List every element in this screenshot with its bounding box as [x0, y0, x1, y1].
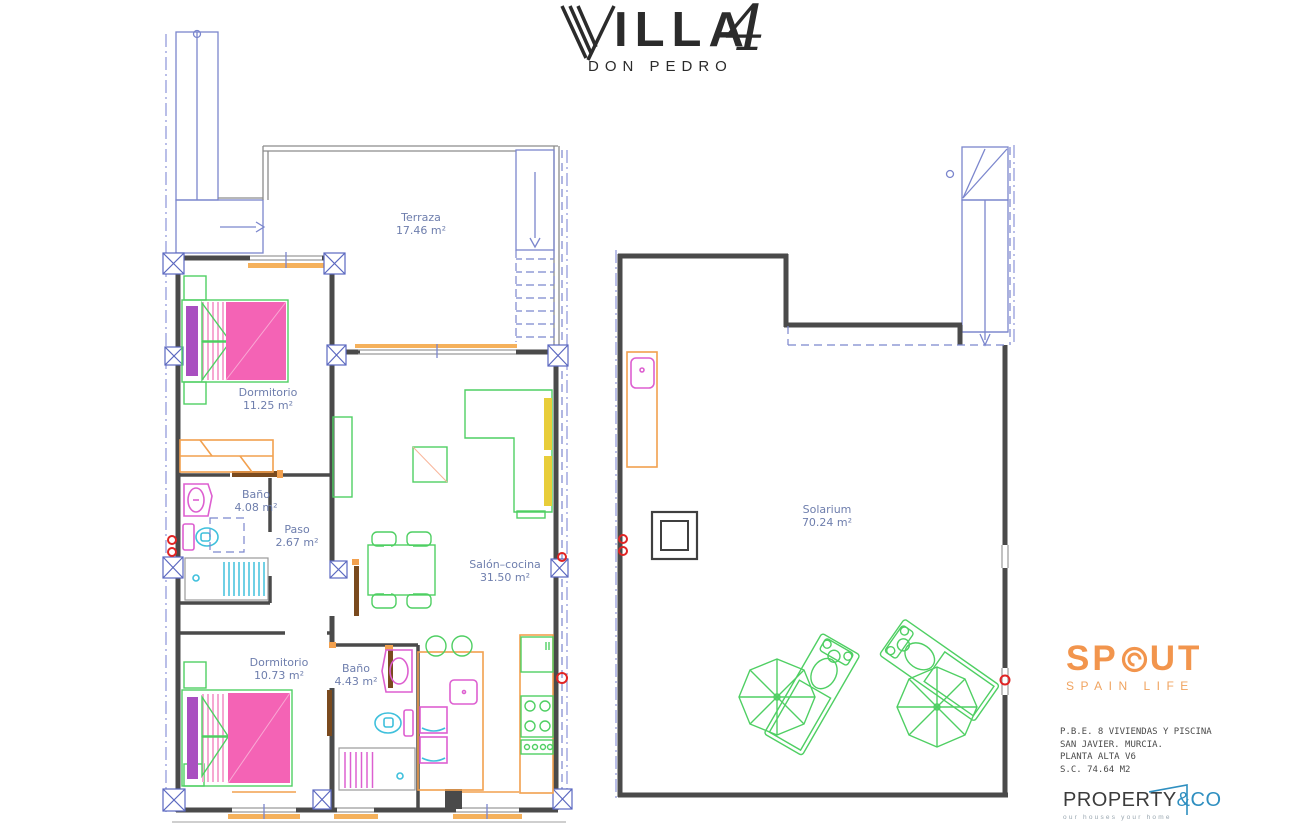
column: [165, 347, 183, 365]
room-label-terraza: Terraza: [400, 211, 441, 224]
roof-projection: [788, 326, 1005, 345]
floorplan-drawing: Terraza 17.46 m² Dormitorio 11.25 m² Bañ…: [0, 0, 1290, 840]
column: [553, 789, 572, 809]
shower: [339, 748, 415, 790]
plumbing-symbols: [619, 535, 1010, 685]
floorplan-sheet: Terraza 17.46 m² Dormitorio 11.25 m² Bañ…: [0, 0, 1290, 840]
project-line-3: PLANTA ALTA V6: [1060, 751, 1212, 764]
parasol: [739, 659, 815, 735]
project-line-2: SAN JAVIER. MURCIA.: [1060, 739, 1212, 752]
room-area-paso: 2.67 m²: [275, 536, 318, 549]
kitchen: [418, 635, 553, 793]
left-plan: Terraza 17.46 m² Dormitorio 11.25 m² Bañ…: [163, 31, 572, 823]
room-area-solarium: 70.24 m²: [802, 516, 852, 529]
room-label-dormitorio1: Dormitorio: [239, 386, 298, 399]
column: [330, 561, 347, 578]
column: [324, 253, 345, 274]
parasol: [897, 667, 977, 747]
spout-logo-pre: SP: [1066, 642, 1119, 676]
sink: [382, 650, 412, 692]
room-label-dormitorio2: Dormitorio: [250, 656, 309, 669]
villa-v-monogram: [558, 2, 620, 64]
room-label-solarium: Solarium: [803, 503, 852, 516]
spout-logo: SP UT SPAIN LIFE: [1066, 642, 1202, 693]
solarium-counter: [627, 352, 657, 467]
spout-tagline: SPAIN LIFE: [1066, 679, 1202, 693]
double-bed: [182, 690, 292, 786]
room-area-salon: 31.50 m²: [480, 571, 530, 584]
corner-sofa: [465, 390, 552, 518]
room-label-salon: Salón–cocina: [469, 558, 541, 571]
toilet: [375, 710, 413, 736]
project-line-4: S.C. 74.64 M2: [1060, 764, 1212, 777]
property-roof-icon: [1149, 783, 1195, 817]
column: [163, 557, 183, 578]
right-plan: Solarium 70.24 m²: [618, 147, 1010, 797]
column: [445, 789, 462, 809]
shower: [185, 558, 268, 600]
toilet: [183, 524, 218, 550]
washer: [420, 707, 447, 733]
column: [163, 789, 185, 811]
project-line-1: P.B.E. 8 VIVIENDAS Y PISCINA: [1060, 726, 1212, 739]
solarium-staircase: [947, 147, 1009, 345]
column: [551, 559, 568, 577]
title-number: 4: [726, 0, 766, 65]
fridge: [521, 637, 553, 672]
skylight: [652, 512, 697, 559]
room-area-dormitorio1: 11.25 m²: [243, 399, 293, 412]
spout-logo-post: UT: [1150, 642, 1203, 676]
coffee-table: [413, 447, 447, 482]
double-bed: [182, 300, 288, 382]
terraza-staircase: [516, 150, 554, 342]
tv-unit: [333, 417, 352, 497]
property-tagline: our houses your home: [1063, 814, 1222, 821]
sink: [184, 484, 212, 516]
project-info-block: P.B.E. 8 VIVIENDAS Y PISCINASAN JAVIER. …: [1060, 726, 1212, 776]
stove: [521, 696, 553, 754]
column: [548, 345, 568, 366]
room-labels: Terraza 17.46 m² Dormitorio 11.25 m² Bañ…: [234, 211, 540, 688]
room-area-bano1: 4.08 m²: [234, 501, 277, 514]
spout-spiral-icon: [1121, 646, 1148, 673]
room-label-bano1: Baño: [242, 488, 270, 501]
column: [313, 790, 331, 809]
sheet-title: ILLA 4 DON PEDRO: [556, 0, 806, 86]
room-area-terraza: 17.46 m²: [396, 224, 446, 237]
washer: [420, 737, 447, 763]
wardrobe: [180, 440, 273, 472]
exterior-staircase: [176, 31, 264, 254]
room-area-bano2: 4.43 m²: [334, 675, 377, 688]
title-subtitle: DON PEDRO: [588, 58, 733, 75]
column: [327, 345, 346, 365]
property-logo: PROPERTY&CO our houses your home: [1063, 789, 1222, 821]
column: [163, 253, 184, 274]
room-area-dormitorio2: 10.73 m²: [254, 669, 304, 682]
room-label-paso: Paso: [284, 523, 310, 536]
bedroom1-furniture: [180, 276, 288, 472]
dining-table: [368, 532, 435, 608]
room-label-bano2: Baño: [342, 662, 370, 675]
